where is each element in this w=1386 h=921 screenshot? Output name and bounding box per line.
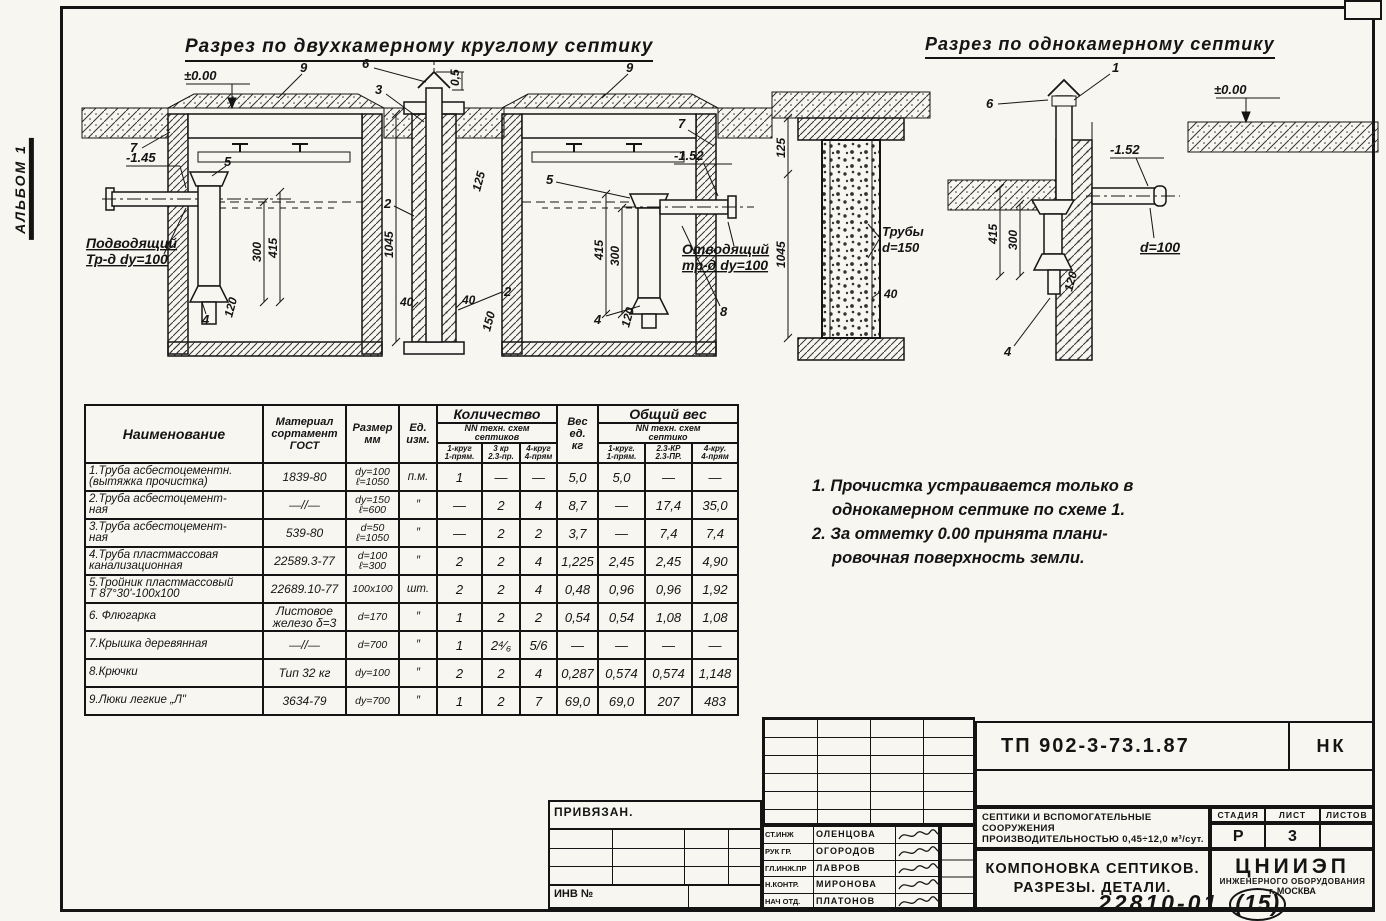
dim-120-right: 120 (618, 305, 637, 328)
drawing-sheet: АЛЬБОМ 1 Разрез по двухкамерному круглом… (0, 0, 1386, 921)
cell-qty-3: 4 (520, 491, 557, 519)
cell-unit: ″ (399, 659, 437, 687)
cell-total-3: 7,4 (692, 519, 738, 547)
cell-size: dy=100 (346, 659, 399, 687)
cell-unit-weight: 0,287 (557, 659, 598, 687)
dim-415-right: 415 (592, 240, 606, 261)
detail-tube-label-1: Трубы (882, 224, 924, 239)
callout-6: 6 (362, 56, 370, 71)
cell-name: 5.Тройник пластмассовыйТ 87°30'-100х100 (85, 575, 263, 603)
cell-unit-weight: 5,0 (557, 463, 598, 491)
qty-scheme-2: 3 кр2.3-пр. (482, 443, 520, 463)
cell-qty-1: 2 (437, 547, 482, 575)
cell-unit: ″ (399, 687, 437, 715)
cell-name: 4.Труба пластмассоваяканализационная (85, 547, 263, 575)
cell-size: dy=150ℓ=600 (346, 491, 399, 519)
detail-wall (822, 140, 880, 338)
total-scheme-3: 4-кру.4-прям (692, 443, 738, 463)
notes: 1. Прочистка устраивается только в однок… (812, 474, 1133, 570)
cell-qty-3: 5/6 (520, 631, 557, 659)
cell-total-3: 1,08 (692, 603, 738, 631)
cell-unit-weight: 0,48 (557, 575, 598, 603)
cell-total-3: 35,0 (692, 491, 738, 519)
table-row: 6. Флюгарка Листовоежелезо δ=3 d=170 ″ 1… (85, 603, 738, 631)
cell-total-2: — (645, 463, 692, 491)
cell-size: d=170 (346, 603, 399, 631)
detail-top-slab (798, 118, 904, 140)
cell-unit: п.м. (399, 463, 437, 491)
cell-gost: 22589.3-77 (263, 547, 346, 575)
total-scheme-1: 1-круг.1-прям. (598, 443, 645, 463)
note-2-line-1: 2. За отметку 0.00 принята плани- (812, 522, 1133, 546)
oc-callout-6: 6 (986, 96, 994, 111)
note-1-line-2: однокамерном септике по схеме 1. (812, 498, 1133, 522)
oc-d100-label: d=100 (1140, 239, 1180, 255)
col-quantity: Количество (437, 405, 557, 423)
cell-qty-1: 1 (437, 463, 482, 491)
cell-qty-3: 4 (520, 575, 557, 603)
cell-total-3: 1,148 (692, 659, 738, 687)
detail-ground (772, 92, 930, 118)
inventory-number-label: ИНВ № (554, 888, 593, 900)
sheet-oval: (15) (1229, 888, 1286, 921)
partition-detail-drawing: 125 1045 Трубы d=150 40 (772, 86, 930, 378)
cell-unit-weight: 1,225 (557, 547, 598, 575)
oc-dim-300: 300 (1006, 230, 1020, 250)
inlet-elevation: -1.45 (126, 150, 156, 165)
elevation-zero: ±0.00 (184, 68, 217, 83)
detail-dim-1045: 1045 (774, 241, 788, 268)
privyazan-label: ПРИВЯЗАН. (554, 805, 633, 819)
cell-name: 6. Флюгарка (85, 603, 263, 631)
callout-8: 8 (720, 304, 728, 319)
date-column (940, 825, 975, 909)
title-block: ТП 902-3-73.1.87 НК ПРИВЯЗАН. ИНВ № СТ.И… (548, 715, 1375, 909)
stage-header-cell: СТАДИЯ (1212, 809, 1266, 821)
signature-squiggle (897, 844, 941, 860)
cell-gost: 1839-80 (263, 463, 346, 491)
document-mark: НК (1288, 721, 1375, 771)
cell-total-1: 5,0 (598, 463, 645, 491)
privyazan-block: ПРИВЯЗАН. ИНВ № (548, 800, 762, 909)
dim-0-5: 0,5 (448, 69, 462, 86)
signature-rows: СТ.ИНЖ ОЛЕНЦОВА РУК ГР. ОГОРОДОВ ГЛ.ИНЖ.… (762, 825, 940, 909)
dim-300-right: 300 (608, 246, 622, 266)
oc-callout-1: 1 (1112, 60, 1119, 75)
detail-dim-125: 125 (774, 138, 788, 158)
detail-tube-label-2: d=150 (882, 240, 920, 255)
cell-total-2: 1,08 (645, 603, 692, 631)
corner-box (1344, 0, 1382, 20)
signature (896, 894, 938, 910)
dim-300-left: 300 (250, 242, 264, 262)
one-chamber-section-drawing: 1 6 ±0.00 -1.52 d=100 415 300 120 4 (948, 30, 1378, 390)
role-label: РУК ГР. (764, 844, 814, 860)
oc-outlet (1086, 186, 1180, 206)
document-number: 22810-01(15) (1098, 888, 1286, 921)
cell-qty-3: 2 (520, 603, 557, 631)
stage-value: Р (1212, 825, 1266, 847)
cell-unit: шт. (399, 575, 437, 603)
dim-1045: 1045 (382, 231, 396, 258)
person-name: ПЛАТОНОВ (814, 894, 896, 910)
cell-qty-1: 1 (437, 603, 482, 631)
signature-squiggle (897, 877, 941, 893)
sheet-number: 3 (1266, 825, 1320, 847)
cell-name: 8.Крючки (85, 659, 263, 687)
cell-unit-weight: 8,7 (557, 491, 598, 519)
signature-squiggle (897, 827, 941, 843)
stage-header-cell: ЛИСТОВ (1321, 809, 1373, 821)
cell-size: d=50ℓ=1050 (346, 519, 399, 547)
cell-total-2: 0,574 (645, 659, 692, 687)
cell-qty-3: 2 (520, 519, 557, 547)
outlet-label-2: тр-д dy=100 (682, 257, 768, 273)
cell-size: 100х100 (346, 575, 399, 603)
album-label: АЛЬБОМ 1 (12, 138, 34, 240)
callout-5-left: 5 (224, 154, 232, 169)
outlet-label-1: Отводящий (682, 241, 770, 257)
cell-total-1: — (598, 631, 645, 659)
cell-qty-1: 1 (437, 631, 482, 659)
empty-grid (762, 717, 975, 825)
callout-2-top: 2 (383, 196, 392, 211)
signature (896, 844, 938, 860)
table-row: 7.Крышка деревянная —//— d=700 ″ 1 2⁴⁄₆ … (85, 631, 738, 659)
cell-name: 3.Труба асбестоцемент-ная (85, 519, 263, 547)
col-material: Материал сортамент ГОСТ (263, 405, 346, 463)
cell-total-1: — (598, 491, 645, 519)
cell-qty-2: 2 (482, 491, 520, 519)
cell-total-1: — (598, 519, 645, 547)
table-row: 4.Труба пластмассоваяканализационная 225… (85, 547, 738, 575)
cell-total-1: 0,54 (598, 603, 645, 631)
cell-unit: ″ (399, 631, 437, 659)
stage-header-cell: ЛИСТ (1266, 809, 1320, 821)
table-row: 8.Крючки Тип 32 кг dy=100 ″ 2 2 4 0,287 … (85, 659, 738, 687)
callout-9-right: 9 (626, 60, 634, 75)
project-description: СЕПТИКИ И ВСПОМОГАТЕЛЬНЫЕ СООРУЖЕНИЯ ПРО… (975, 807, 1210, 849)
total-subheader: NN техн. схем септико (598, 423, 738, 443)
qty-scheme-3: 4-круг4-прям (520, 443, 557, 463)
cell-qty-3: — (520, 463, 557, 491)
table-row: 3.Труба асбестоцемент-ная 539-80 d=50ℓ=1… (85, 519, 738, 547)
role-label: Н.КОНТР. (764, 877, 814, 893)
detail-dim-40: 40 (883, 287, 898, 301)
cell-qty-1: — (437, 519, 482, 547)
qty-scheme-1: 1-круг1-прям. (437, 443, 482, 463)
callout-3: 3 (375, 82, 383, 97)
dim-40-b: 40 (461, 293, 476, 307)
org-name: ЦНИИЭП (1212, 857, 1373, 877)
callout-4-left: 4 (201, 312, 210, 327)
org-subtitle: ИНЖЕНЕРНОГО ОБОРУДОВАНИЯ (1212, 877, 1373, 886)
cell-gost: —//— (263, 491, 346, 519)
cell-name: 9.Люки легкие „Л" (85, 687, 263, 715)
cell-qty-2: 2 (482, 603, 520, 631)
cell-total-3: 483 (692, 687, 738, 715)
oc-outlet-elevation: -1.52 (1110, 142, 1140, 157)
role-label: НАЧ ОТД. (764, 894, 814, 910)
sheets-total (1321, 825, 1373, 847)
cell-qty-2: 2 (482, 519, 520, 547)
signature-squiggle (897, 861, 941, 877)
note-2-line-2: ровочная поверхность земли. (812, 546, 1133, 570)
cell-total-3: 1,92 (692, 575, 738, 603)
cell-qty-2: 2 (482, 687, 520, 715)
cell-size: dy=100ℓ=1050 (346, 463, 399, 491)
callout-2-bottom: 2 (503, 284, 512, 299)
person-name: ЛАВРОВ (814, 861, 896, 877)
table-row: 9.Люки легкие „Л" 3634-79 dy=700 ″ 1 2 7… (85, 687, 738, 715)
cell-gost: Листовоежелезо δ=3 (263, 603, 346, 631)
cell-total-1: 2,45 (598, 547, 645, 575)
cell-unit: ″ (399, 603, 437, 631)
cell-unit: ″ (399, 547, 437, 575)
inlet-label-2: Тр-д dy=100 (86, 251, 168, 267)
cell-total-2: 207 (645, 687, 692, 715)
cell-qty-1: 2 (437, 659, 482, 687)
cell-gost: Тип 32 кг (263, 659, 346, 687)
cell-total-3: — (692, 463, 738, 491)
cell-unit: ″ (399, 519, 437, 547)
cell-size: d=700 (346, 631, 399, 659)
role-label: СТ.ИНЖ (764, 827, 814, 843)
cell-qty-2: 2 (482, 659, 520, 687)
detail-bottom-slab (798, 338, 904, 360)
cell-total-2: — (645, 631, 692, 659)
cell-gost: —//— (263, 631, 346, 659)
cell-qty-1: 1 (437, 687, 482, 715)
cell-total-1: 0,96 (598, 575, 645, 603)
cell-qty-2: 2 (482, 575, 520, 603)
col-name: Наименование (85, 405, 263, 463)
cell-unit-weight: — (557, 631, 598, 659)
note-1-line-1: 1. Прочистка устраивается только в (812, 474, 1133, 498)
cell-qty-1: — (437, 491, 482, 519)
cell-total-3: 4,90 (692, 547, 738, 575)
table-row: 5.Тройник пластмассовыйТ 87°30'-100х100 … (85, 575, 738, 603)
cell-name: 7.Крышка деревянная (85, 631, 263, 659)
col-total-weight: Общий вес (598, 405, 738, 423)
table-row: 2.Труба асбестоцемент-ная —//— dy=150ℓ=6… (85, 491, 738, 519)
signature-row: РУК ГР. ОГОРОДОВ (764, 844, 938, 861)
signature-row: СТ.ИНЖ ОЛЕНЦОВА (764, 827, 938, 844)
cell-total-2: 2,45 (645, 547, 692, 575)
person-name: ОЛЕНЦОВА (814, 827, 896, 843)
stage-values: Р 3 (1210, 823, 1375, 849)
cell-unit-weight: 0,54 (557, 603, 598, 631)
signature (896, 877, 938, 893)
person-name: ОГОРОДОВ (814, 844, 896, 860)
signature-row: Н.КОНТР. МИРОНОВА (764, 877, 938, 894)
cell-qty-2: 2⁴⁄₆ (482, 631, 520, 659)
cell-unit: ″ (399, 491, 437, 519)
cell-qty-3: 4 (520, 547, 557, 575)
signature (896, 861, 938, 877)
signature (896, 827, 938, 843)
inlet-label-1: Подводящий (86, 235, 177, 251)
cell-qty-1: 2 (437, 575, 482, 603)
cell-gost: 22689.10-77 (263, 575, 346, 603)
col-size: Размер мм (346, 405, 399, 463)
cell-size: dy=700 (346, 687, 399, 715)
two-chamber-section-drawing: ±0.00 9 6 3 0,5 9 7 7 -1.45 -1.52 5 5 2 … (82, 56, 772, 392)
dim-40-a: 40 (399, 295, 414, 309)
specification-table: Наименование Материал сортамент ГОСТ Раз… (84, 404, 739, 716)
cell-qty-2: 2 (482, 547, 520, 575)
signature-row: НАЧ ОТД. ПЛАТОНОВ (764, 894, 938, 911)
cell-gost: 539-80 (263, 519, 346, 547)
empty-band (975, 769, 1375, 807)
dim-125: 125 (469, 169, 488, 192)
table-row: 1.Труба асбестоцементн.(вытяжка прочистк… (85, 463, 738, 491)
callout-4-right: 4 (593, 312, 602, 327)
cell-total-2: 7,4 (645, 519, 692, 547)
cell-total-2: 0,96 (645, 575, 692, 603)
signature-squiggle (897, 894, 941, 910)
cell-name: 1.Труба асбестоцементн.(вытяжка прочистк… (85, 463, 263, 491)
callout-7-right: 7 (678, 116, 686, 131)
person-name: МИРОНОВА (814, 877, 896, 893)
document-code: ТП 902-3-73.1.87 (975, 721, 1290, 771)
callout-5-right: 5 (546, 172, 554, 187)
role-label: ГЛ.ИНЖ.ПР (764, 861, 814, 877)
cell-qty-2: — (482, 463, 520, 491)
outlet-elevation: -1.52 (674, 148, 704, 163)
cell-qty-3: 7 (520, 687, 557, 715)
total-scheme-2: 2.3-КР2.3-ПР. (645, 443, 692, 463)
dim-150: 150 (479, 309, 498, 332)
qty-subheader: NN техн. схем септиков (437, 423, 557, 443)
cell-unit-weight: 3,7 (557, 519, 598, 547)
col-unit: Ед. изм. (399, 405, 437, 463)
dim-415-left: 415 (266, 238, 280, 259)
cell-total-1: 69,0 (598, 687, 645, 715)
cell-total-2: 17,4 (645, 491, 692, 519)
cell-name: 2.Труба асбестоцемент-ная (85, 491, 263, 519)
col-unit-weight: Вес ед. кг (557, 405, 598, 463)
cell-unit-weight: 69,0 (557, 687, 598, 715)
stage-header: СТАДИЯЛИСТЛИСТОВ (1210, 807, 1375, 823)
oc-elevation-zero: ±0.00 (1214, 82, 1247, 97)
cell-qty-3: 4 (520, 659, 557, 687)
cell-total-1: 0,574 (598, 659, 645, 687)
oc-callout-4: 4 (1003, 344, 1012, 359)
signature-row: ГЛ.ИНЖ.ПР ЛАВРОВ (764, 861, 938, 878)
cell-gost: 3634-79 (263, 687, 346, 715)
oc-dim-415: 415 (986, 224, 1000, 245)
cell-total-3: — (692, 631, 738, 659)
cell-size: d=100ℓ=300 (346, 547, 399, 575)
callout-9-left: 9 (300, 60, 308, 75)
